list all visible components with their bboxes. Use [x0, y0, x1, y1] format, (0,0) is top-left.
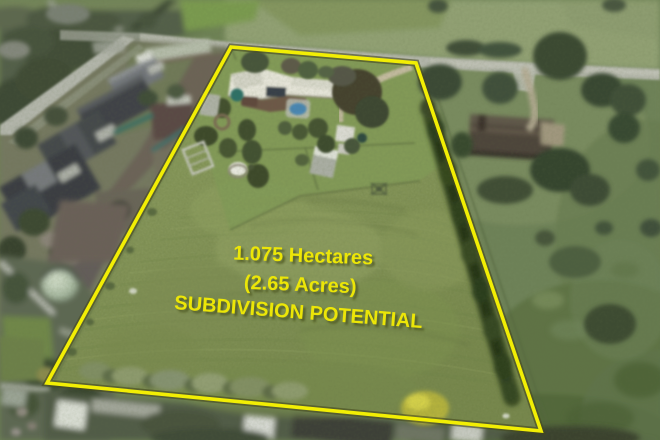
svg-text:(2.65 Acres): (2.65 Acres) — [244, 272, 357, 298]
